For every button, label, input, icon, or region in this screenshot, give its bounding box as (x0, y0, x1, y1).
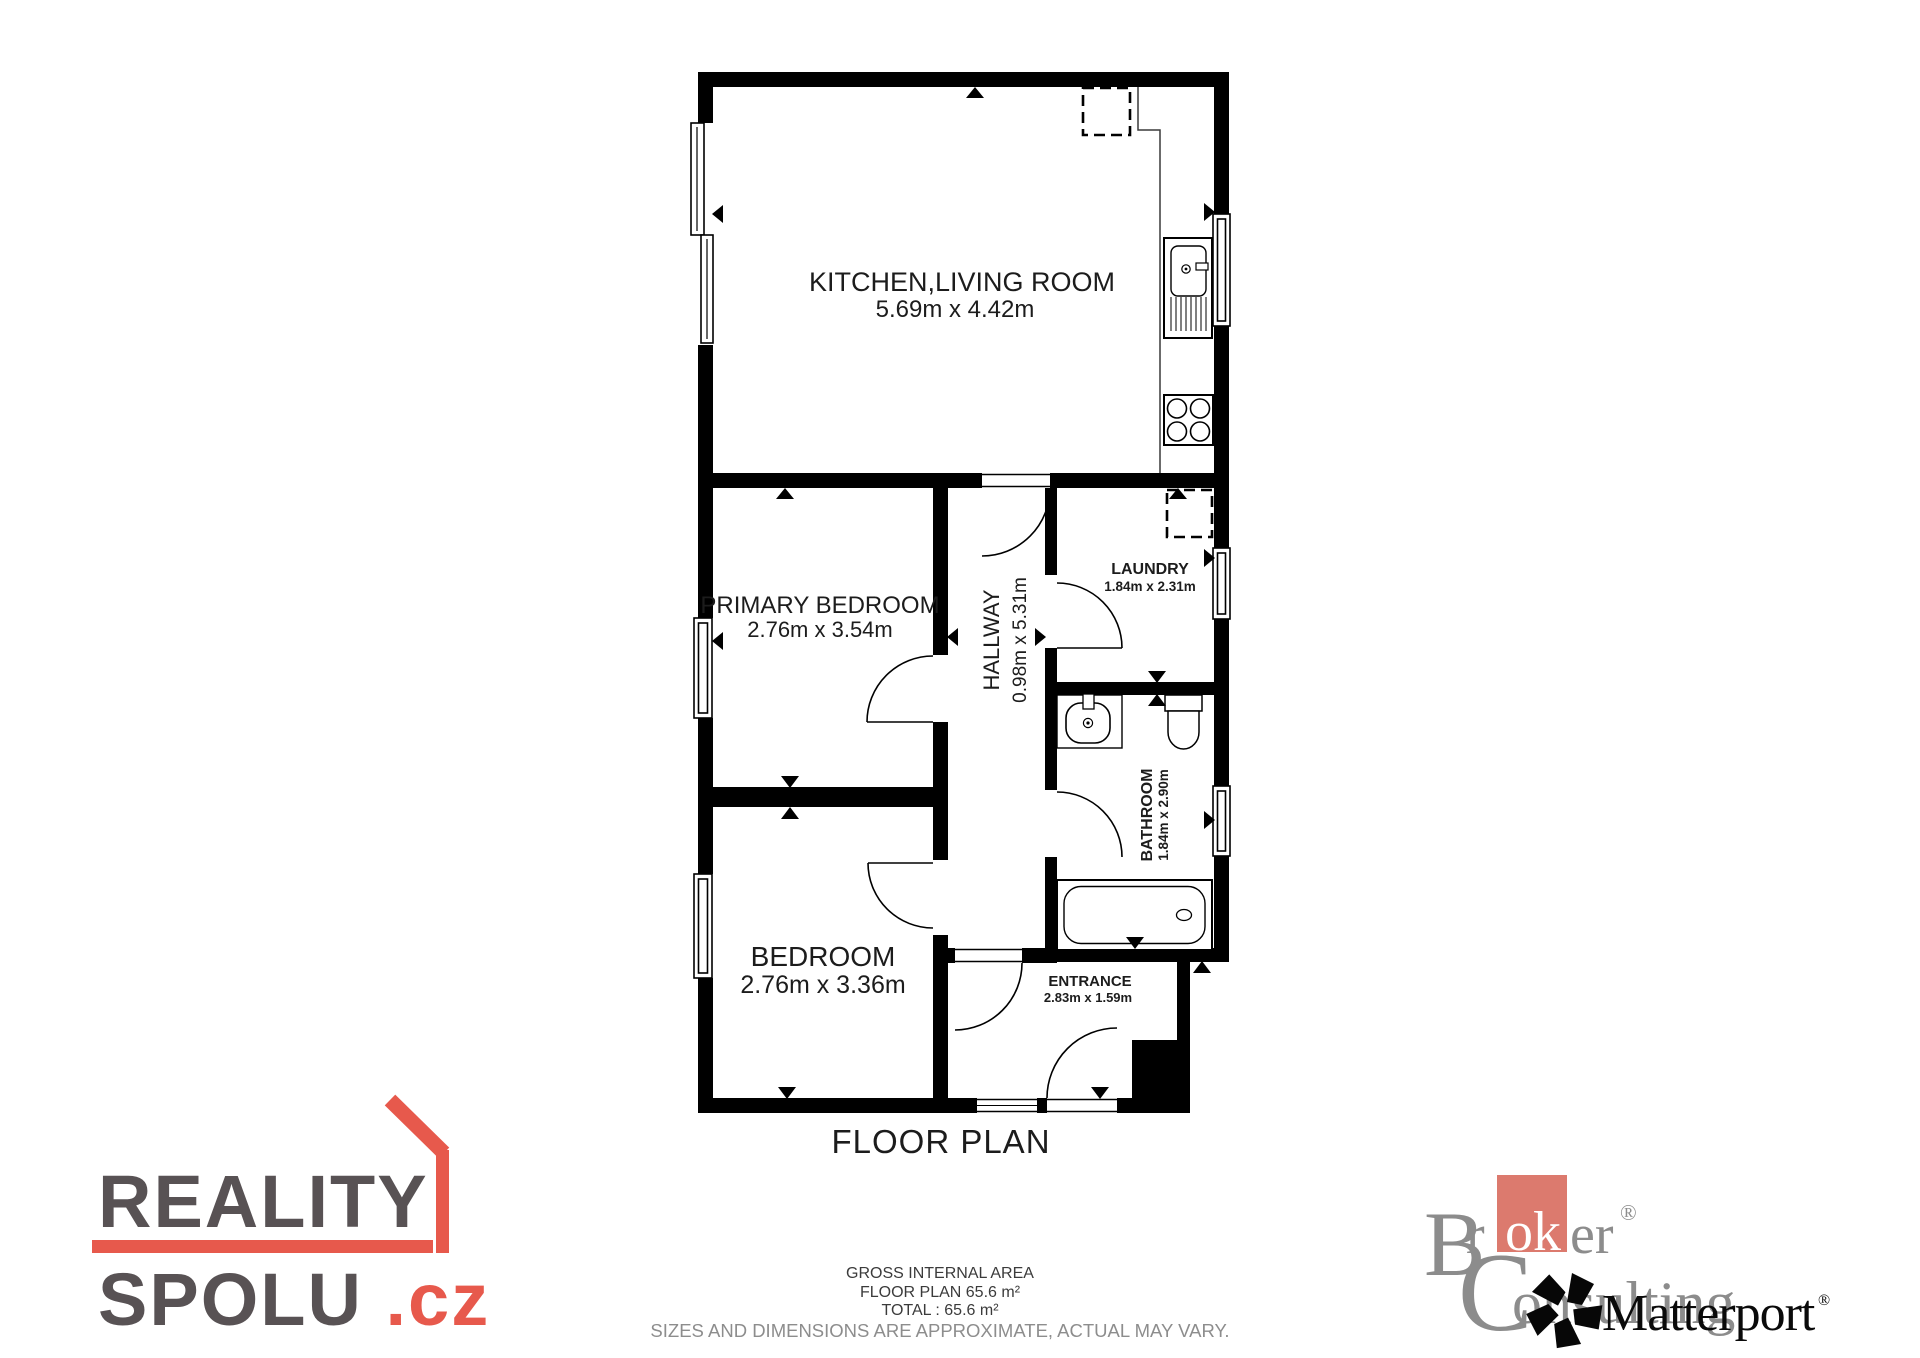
laundry-window (1213, 548, 1230, 619)
floor-plan-canvas: KITCHEN,LIVING ROOM 5.69m x 4.42m PRIMAR… (0, 0, 1920, 1358)
entrance-window (977, 1098, 1037, 1113)
gross-internal-area-text: GROSS INTERNAL AREA (846, 1265, 1034, 1282)
broker-er-fragment: er (1570, 1204, 1614, 1266)
disclaimer-text: SIZES AND DIMENSIONS ARE APPROXIMATE, AC… (650, 1320, 1229, 1341)
bedroom-label: BEDROOM (751, 941, 896, 972)
toilet-icon (1165, 695, 1202, 749)
reality-wordmark: REALITY (98, 1160, 429, 1243)
reality-spolu-logo: REALITY SPOLU .cz (92, 1100, 490, 1341)
stove-icon (1164, 395, 1213, 445)
entrance-label: ENTRANCE (1048, 973, 1131, 990)
bathroom-door-arc (1057, 792, 1122, 857)
kitchen-living-room-dimensions: 5.69m x 4.42m (876, 296, 1035, 323)
bathroom-sink-icon (1057, 694, 1122, 748)
kitchen-window-left-upper (691, 123, 704, 235)
kitchen-window-right (1213, 214, 1230, 326)
shaft-block (1132, 1040, 1190, 1113)
kitchen-hallway-threshold (982, 473, 1050, 488)
entry-door-threshold (1047, 1098, 1117, 1113)
cz-text: .cz (385, 1258, 490, 1341)
total-area-text: TOTAL : 65.6 m² (881, 1302, 999, 1319)
primary-bedroom-label: PRIMARY BEDROOM (700, 592, 939, 619)
kitchen-counter-line (1138, 87, 1160, 473)
fixtures (1057, 87, 1213, 950)
kitchen-window-left-lower (701, 235, 713, 343)
floor-plan-page: KITCHEN,LIVING ROOM 5.69m x 4.42m PRIMAR… (0, 0, 1920, 1358)
door-thresholds (955, 473, 1117, 1113)
floor-plan-area-text: FLOOR PLAN 65.6 m² (860, 1284, 1021, 1301)
laundry-dimensions: 1.84m x 2.31m (1104, 579, 1196, 594)
matterport-wordmark: Matterport (1602, 1285, 1816, 1342)
primary-bedroom-dimensions: 2.76m x 3.54m (747, 617, 893, 642)
bedroom-window (694, 874, 712, 978)
hallway-dimensions: 0.98m x 5.31m (1010, 577, 1031, 703)
kitchen-living-room-label: KITCHEN,LIVING ROOM (809, 267, 1115, 297)
hallway-label: HALLWAY (979, 589, 1004, 690)
kitchen-appliance-dashed-icon (1083, 88, 1130, 135)
hallway-entrance-door-arc (955, 963, 1022, 1030)
entrance-dimensions: 2.83m x 1.59m (1044, 990, 1132, 1005)
primary-bedroom-window (694, 618, 712, 718)
kitchen-hallway-door-arc (982, 488, 1050, 556)
matterport-registered-mark: ® (1818, 1292, 1830, 1309)
primary-bedroom-door-arc (867, 656, 933, 722)
spolu-wordmark: SPOLU .cz (98, 1258, 490, 1341)
bedroom-door-arc (868, 863, 933, 928)
bedroom-dimensions: 2.76m x 3.36m (740, 971, 905, 999)
bathroom-label: BATHROOM (1139, 768, 1156, 861)
reality-spolu-vertical-shape (436, 1150, 449, 1253)
hallway-entrance-threshold (955, 948, 1022, 963)
bathroom-dimensions: 1.84m x 2.90m (1156, 769, 1171, 861)
page-title: FLOOR PLAN (831, 1123, 1050, 1160)
broker-registered-mark: ® (1620, 1200, 1637, 1225)
bathroom-window (1213, 786, 1230, 856)
reality-spolu-roof-shape (390, 1100, 444, 1153)
kitchen-sink-icon (1164, 238, 1212, 338)
spolu-text: SPOLU (98, 1258, 363, 1341)
footer-notes: GROSS INTERNAL AREA FLOOR PLAN 65.6 m² T… (650, 1265, 1229, 1341)
laundry-label: LAUNDRY (1111, 561, 1189, 578)
